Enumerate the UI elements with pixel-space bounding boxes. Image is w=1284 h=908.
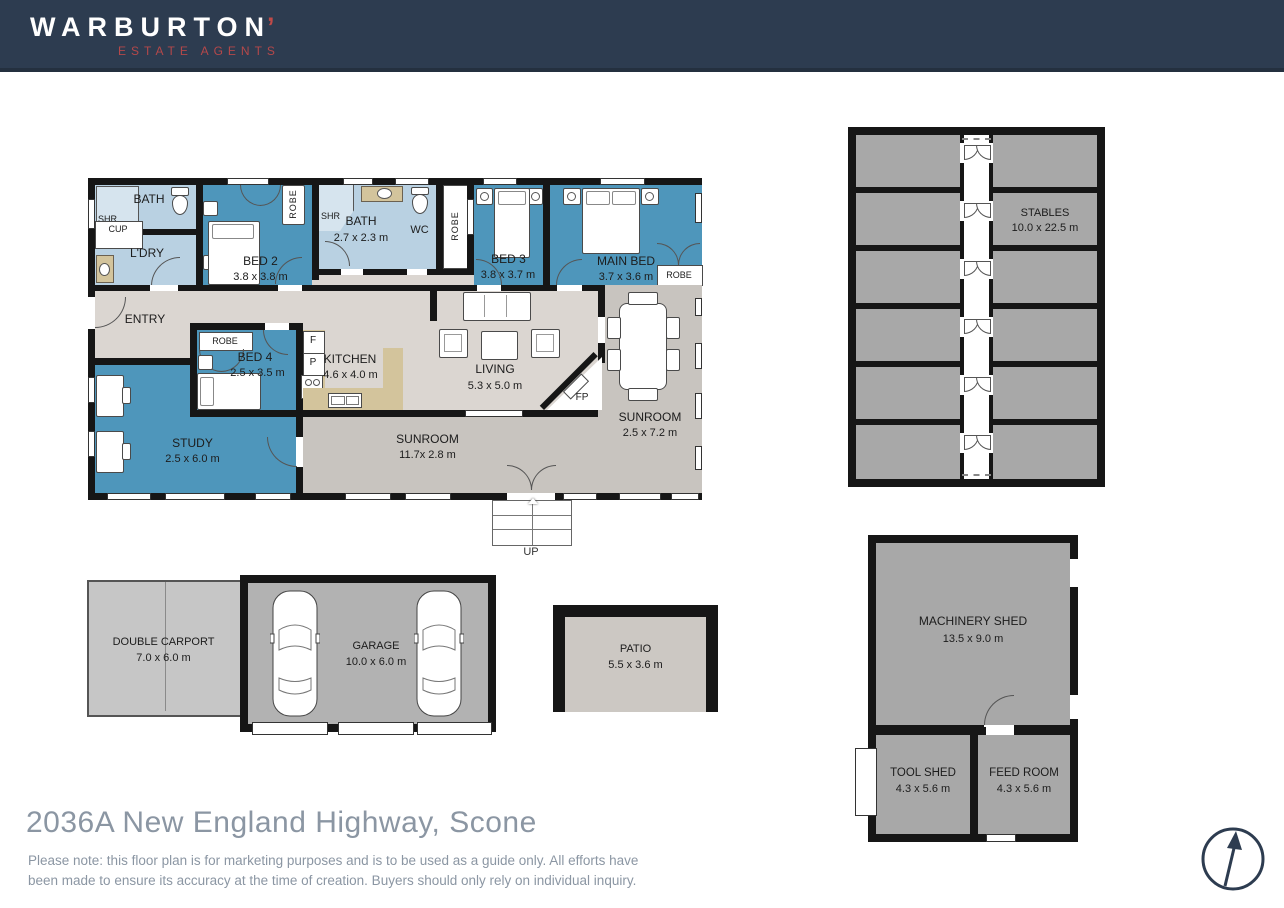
window <box>227 178 269 185</box>
dashed-opening <box>962 138 991 140</box>
garage-door-panel <box>252 722 328 735</box>
bedside-table-icon <box>641 188 659 205</box>
door-gap <box>477 285 501 291</box>
page-title: 2036A New England Highway, Scone <box>26 806 537 840</box>
bath-main-label: BATH <box>319 215 403 228</box>
tool-shed-dims: 4.3 x 5.6 m <box>876 783 970 795</box>
stall <box>856 135 960 187</box>
kitchen-label: KITCHEN <box>295 353 405 366</box>
wall <box>430 291 437 321</box>
window <box>165 493 225 500</box>
bed4-label: BED 4 <box>210 351 300 364</box>
cushion-line <box>484 295 485 317</box>
garage-plan: GARAGE 10.0 x 6.0 m <box>240 575 496 732</box>
machinery-shed-plan: MACHINERY SHED 13.5 x 9.0 m <box>868 535 1078 733</box>
wall <box>553 605 565 712</box>
roller-door-icon <box>855 748 877 816</box>
fireplace-label: FP <box>567 391 597 404</box>
brand-wordmark: WARBURTON’ <box>30 12 282 43</box>
stairs <box>492 500 572 546</box>
wall <box>190 323 197 417</box>
machinery-shed-dims: 13.5 x 9.0 m <box>876 633 1070 645</box>
stables-label: STABLES <box>993 207 1097 220</box>
sunroom-east-label: SUNROOM <box>598 411 702 424</box>
study-label: STUDY <box>95 437 290 450</box>
bath-top-label: BATH <box>119 193 179 206</box>
carport-label: DOUBLE CARPORT <box>89 636 238 649</box>
wc-label: WC <box>403 225 436 235</box>
tool-feed-shed-plan: TOOL SHED 4.3 x 5.6 m FEED ROOM 4.3 x 5.… <box>868 727 1078 842</box>
floorplan-page: WARBURTON’ ESTATE AGENTS SHR BATH CUP L'… <box>0 0 1284 908</box>
disclaimer-text: Please note: this floor plan is for mark… <box>28 851 638 891</box>
window <box>88 377 95 403</box>
armchair-icon <box>439 329 468 358</box>
window <box>695 193 702 223</box>
feed-room-dims: 4.3 x 5.6 m <box>978 783 1070 795</box>
double-bed-icon <box>582 188 640 254</box>
door-arc <box>984 695 1014 725</box>
window <box>465 410 523 417</box>
pillow-icon <box>498 191 526 205</box>
living-label: LIVING <box>430 363 560 376</box>
study-dims: 2.5 x 6.0 m <box>95 453 290 465</box>
sofa-icon <box>463 292 531 321</box>
dot <box>480 192 489 201</box>
wall <box>95 358 190 365</box>
stall <box>856 309 960 361</box>
pillow-icon <box>586 191 610 205</box>
seat <box>444 334 462 352</box>
dot <box>531 192 540 201</box>
kitchen-dims: 4.6 x 4.0 m <box>293 369 408 381</box>
chair-icon <box>628 388 658 401</box>
sink-icon <box>328 393 362 408</box>
window <box>671 493 699 500</box>
patio-label: PATIO <box>565 643 706 656</box>
dot <box>567 192 576 201</box>
cushion-line <box>506 295 507 317</box>
pillow-icon <box>200 377 214 406</box>
carport-plan: DOUBLE CARPORT 7.0 x 6.0 m <box>87 580 244 717</box>
bedside-table-icon <box>476 188 493 205</box>
window <box>395 178 429 185</box>
living-dims: 5.3 x 5.0 m <box>425 380 565 392</box>
pillow-icon <box>212 224 254 239</box>
stables-dims: 10.0 x 22.5 m <box>989 222 1101 234</box>
bed-icon <box>494 188 530 258</box>
wall <box>436 185 443 275</box>
stables-aisle <box>964 135 989 479</box>
pillow-icon <box>612 191 636 205</box>
sink-bowl <box>346 396 359 405</box>
garage-label: GARAGE <box>316 640 436 653</box>
seat <box>536 334 554 352</box>
brand-text: WARBURTON <box>30 12 271 42</box>
window <box>255 493 291 500</box>
main-house-plan: SHR BATH CUP L'DRY ROBE BED 2 3.8 x 3.8 … <box>88 178 702 500</box>
window <box>405 493 451 500</box>
window <box>695 298 702 316</box>
up-arrow-icon <box>528 498 538 504</box>
bedside-table-icon <box>563 188 581 205</box>
window <box>695 393 702 419</box>
window <box>483 178 517 185</box>
sunroom-south-dims: 11.7x 2.8 m <box>325 449 530 461</box>
door-gap <box>278 285 302 291</box>
door-gap <box>296 437 303 467</box>
dining-table-icon <box>619 303 667 390</box>
door-gap <box>557 285 582 291</box>
sink-bowl <box>331 396 345 405</box>
tool-shed-label: TOOL SHED <box>876 767 970 780</box>
dot <box>645 192 654 201</box>
chair-icon <box>666 349 680 371</box>
window <box>88 199 95 229</box>
door-gap <box>407 269 427 275</box>
stairs-up-label: UP <box>492 546 570 558</box>
stables-plan: STABLES 10.0 x 22.5 m <box>848 127 1105 487</box>
wall <box>553 605 718 617</box>
entry-door-gap <box>88 297 95 329</box>
stall <box>856 367 960 419</box>
dashed-opening <box>962 474 991 476</box>
stall <box>993 367 1097 419</box>
sunroom-south-label: SUNROOM <box>325 433 530 446</box>
wall <box>970 735 978 834</box>
machinery-shed-label: MACHINERY SHED <box>876 615 1070 628</box>
stall <box>993 425 1097 479</box>
window <box>619 493 661 500</box>
stall <box>856 251 960 303</box>
garage-door-panel <box>417 722 492 735</box>
window <box>88 431 95 457</box>
robe-bed4-label: ROBE <box>199 336 251 346</box>
door-gap <box>150 285 178 291</box>
hall-robe-label: ROBE <box>443 185 467 267</box>
fixture-icon <box>203 201 218 216</box>
window <box>695 343 702 369</box>
desk-icon <box>96 375 124 417</box>
patio-dims: 5.5 x 3.6 m <box>565 659 706 671</box>
header-bar: WARBURTON’ ESTATE AGENTS <box>0 0 1284 72</box>
north-arrow-icon <box>1196 822 1270 896</box>
window <box>343 178 373 185</box>
stall <box>993 135 1097 187</box>
armchair-icon <box>531 329 560 358</box>
sunroom-east-dims: 2.5 x 7.2 m <box>598 427 702 439</box>
robe-bed2-label: ROBE <box>282 185 303 223</box>
car-icon <box>270 588 320 719</box>
chair-icon <box>122 387 131 404</box>
carport-dims: 7.0 x 6.0 m <box>89 652 238 664</box>
stall <box>856 193 960 245</box>
brand-mark: ’ <box>267 12 282 42</box>
window <box>107 493 151 500</box>
chair-icon <box>607 317 621 339</box>
wall <box>543 185 550 285</box>
opening <box>1070 695 1078 719</box>
wall <box>196 185 203 285</box>
cupboard-label: CUP <box>97 224 139 234</box>
window <box>600 178 645 185</box>
window <box>598 317 605 343</box>
window <box>563 493 597 500</box>
basin-icon <box>99 263 110 276</box>
folding-door <box>467 199 474 235</box>
robe-main-bed-label: ROBE <box>657 270 701 280</box>
window <box>695 446 702 470</box>
stall <box>856 425 960 479</box>
door-gap <box>986 727 1014 735</box>
car-icon <box>414 588 464 719</box>
opening <box>1070 559 1078 587</box>
wall <box>190 410 598 417</box>
brand-tagline: ESTATE AGENTS <box>118 44 280 58</box>
patio-plan: PATIO 5.5 x 3.6 m <box>553 605 718 712</box>
door-gap <box>265 323 289 330</box>
wall <box>706 605 718 712</box>
chair-icon <box>607 349 621 371</box>
feed-room-label: FEED ROOM <box>978 767 1070 780</box>
chair-icon <box>666 317 680 339</box>
bedside-table-icon <box>528 188 543 205</box>
sliding-door <box>986 834 1016 842</box>
stair-line <box>532 501 533 545</box>
garage-door-panel <box>338 722 414 735</box>
basin-icon <box>377 188 392 199</box>
garage-dims: 10.0 x 6.0 m <box>316 656 436 668</box>
coffee-table-icon <box>481 331 518 360</box>
chair-icon <box>628 292 658 305</box>
door-gap <box>341 269 363 275</box>
stall <box>993 309 1097 361</box>
window <box>345 493 391 500</box>
fridge-label: F <box>303 336 323 346</box>
stall <box>993 251 1097 303</box>
